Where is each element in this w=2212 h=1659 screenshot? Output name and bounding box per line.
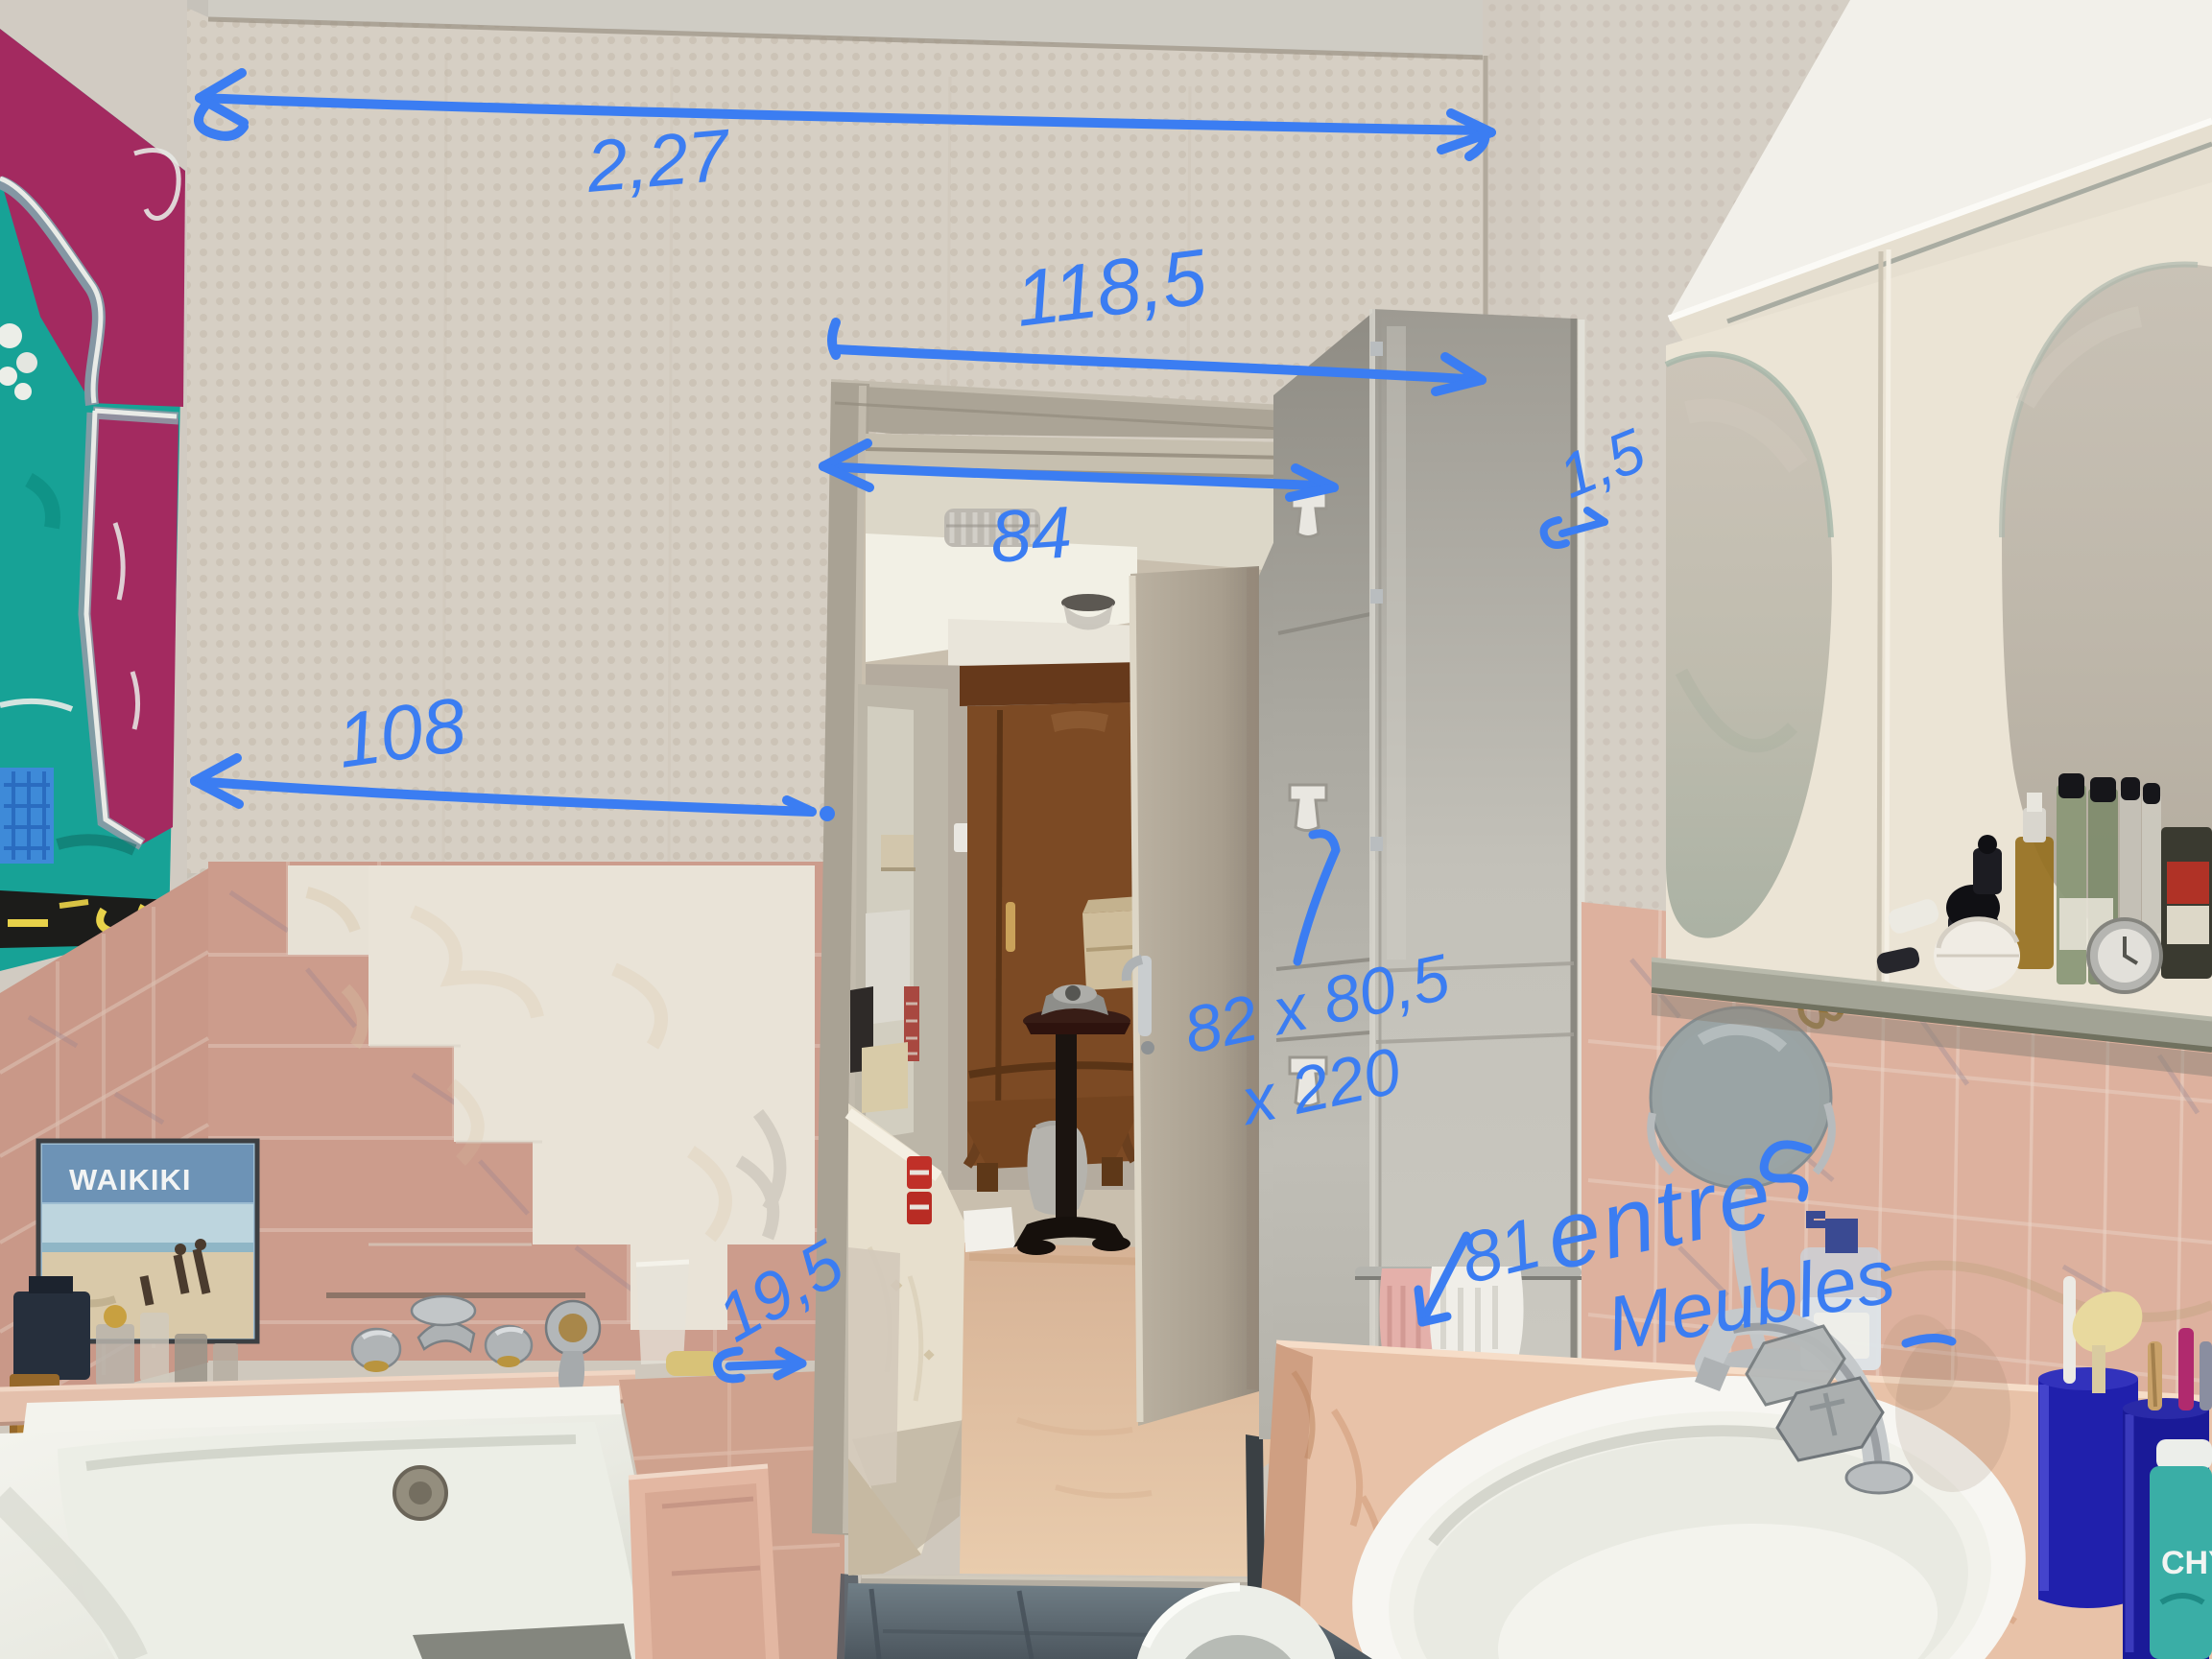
- svg-text:CHY: CHY: [2161, 1545, 2212, 1581]
- svg-text:108: 108: [332, 681, 471, 784]
- svg-text:84: 84: [987, 491, 1074, 579]
- svg-text:WAIKIKI: WAIKIKI: [69, 1163, 192, 1197]
- svg-text:2,27: 2,27: [583, 114, 734, 208]
